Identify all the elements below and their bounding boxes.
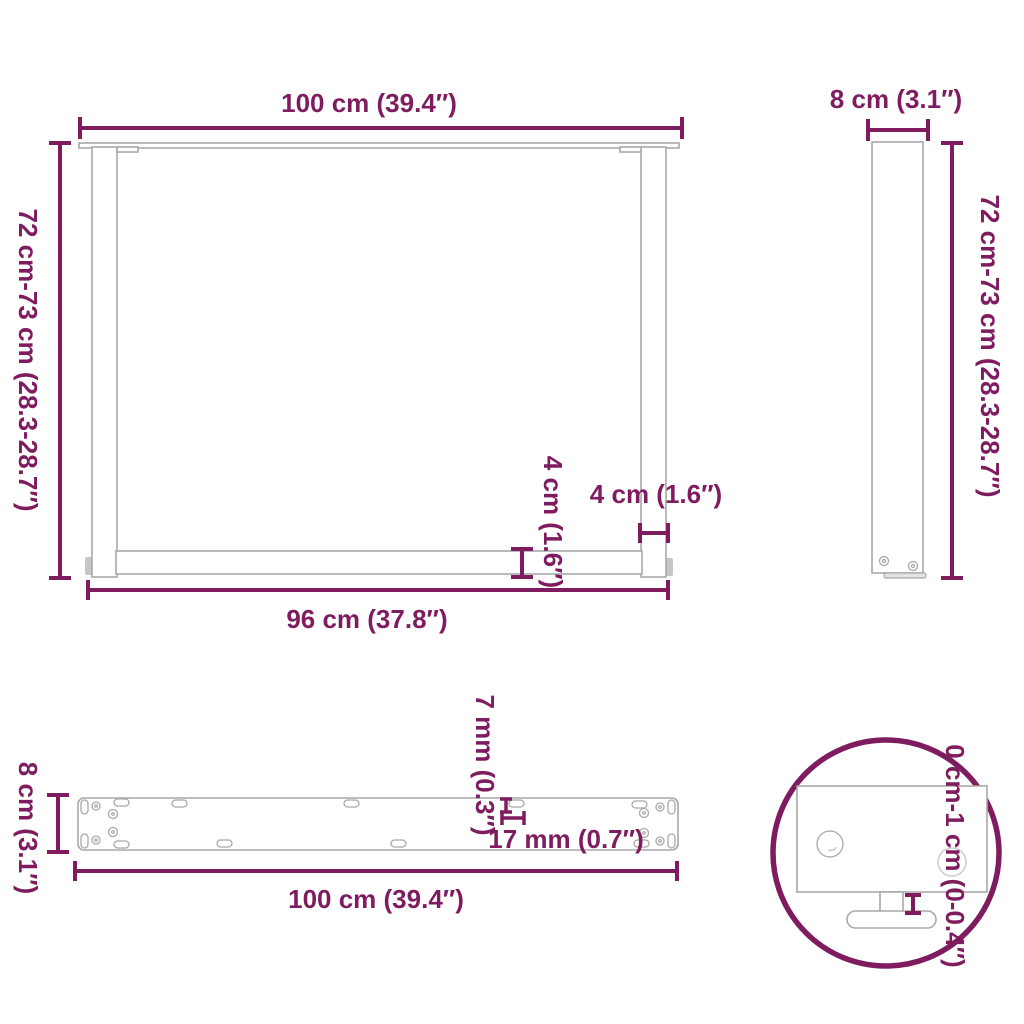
front-top-dimension: 100 cm (39.4″) <box>80 88 682 139</box>
plate-slot <box>344 800 359 807</box>
plate-slot <box>632 801 647 808</box>
detail-screw-hole <box>817 831 843 857</box>
side-top-dimension: 8 cm (3.1″) <box>830 84 962 141</box>
plate-slot <box>172 800 187 807</box>
side-right-dimension: 72 cm-73 cm (28.3-28.7″) <box>941 143 1005 578</box>
side-right-height-label: 72 cm-73 cm (28.3-28.7″) <box>975 195 1005 498</box>
detail-foot-pad <box>847 911 936 928</box>
plate-view: 8 cm (3.1″) 7 mm (0.3″) 17 mm (0.7″) 100… <box>13 694 678 914</box>
plate-screw-center <box>95 839 98 842</box>
plate-slot <box>391 840 406 847</box>
side-foot <box>884 573 926 578</box>
plate-screw-center <box>659 806 662 809</box>
detail-adjust-range-label: 0 cm-1 cm (0-0.4″) <box>940 744 970 967</box>
plate-bottom-dimension: 100 cm (39.4″) <box>75 861 677 914</box>
plate-screw-center <box>643 812 646 815</box>
front-bottom-width-label: 96 cm (37.8″) <box>286 604 447 634</box>
plate-left-depth-label: 8 cm (3.1″) <box>13 762 43 894</box>
plate-slot <box>81 800 88 814</box>
front-left-leg <box>92 147 117 577</box>
side-view-drawing <box>872 142 926 578</box>
front-right-leg <box>641 147 666 577</box>
plate-left-dimension: 8 cm (3.1″) <box>13 762 69 894</box>
front-top-width-label: 100 cm (39.4″) <box>281 88 457 118</box>
plate-slot <box>509 800 524 807</box>
plate-slot <box>668 800 675 814</box>
side-screw-right-center <box>912 565 915 568</box>
plate-screw-center <box>95 805 98 808</box>
front-leg-width-label: 4 cm (1.6″) <box>590 479 722 509</box>
front-view-drawing <box>79 143 679 577</box>
plate-slot <box>81 834 88 848</box>
plate-screw-center <box>112 831 115 834</box>
plate-bottom-length-label: 100 cm (39.4″) <box>288 884 464 914</box>
side-screw-left-center <box>883 560 886 563</box>
front-crossbar-height-label: 4 cm (1.6″) <box>538 456 568 588</box>
front-top-plate <box>79 143 679 148</box>
front-view: 100 cm (39.4″) 72 cm-73 cm (28.3-28.7″) … <box>13 88 722 634</box>
plate-slot <box>114 799 129 806</box>
detail-view: 0 cm-1 cm (0-0.4″) <box>773 740 999 968</box>
plate-slot-height-label: 7 mm (0.3″) <box>470 694 500 835</box>
diagram-svg: 100 cm (39.4″) 72 cm-73 cm (28.3-28.7″) … <box>0 0 1024 1024</box>
dimension-diagram: 100 cm (39.4″) 72 cm-73 cm (28.3-28.7″) … <box>0 0 1024 1024</box>
plate-screw-center <box>659 840 662 843</box>
plate-slot-width-label: 17 mm (0.7″) <box>488 824 644 854</box>
detail-foot-stem <box>880 892 903 913</box>
plate-slot <box>114 841 129 848</box>
side-leg-body <box>872 142 923 573</box>
side-top-width-label: 8 cm (3.1″) <box>830 84 962 114</box>
plate-screw-center <box>112 813 115 816</box>
plate-slot <box>217 840 232 847</box>
front-left-dimension: 72 cm-73 cm (28.3-28.7″) <box>13 143 71 578</box>
front-right-bracket <box>620 147 641 152</box>
front-left-bracket <box>117 147 138 152</box>
front-left-height-label: 72 cm-73 cm (28.3-28.7″) <box>13 209 43 512</box>
plate-slot <box>668 834 675 848</box>
side-view: 8 cm (3.1″) 72 cm-73 cm (28.3-28.7″) <box>830 84 1005 578</box>
front-bottom-dimension: 96 cm (37.8″) <box>88 580 668 634</box>
